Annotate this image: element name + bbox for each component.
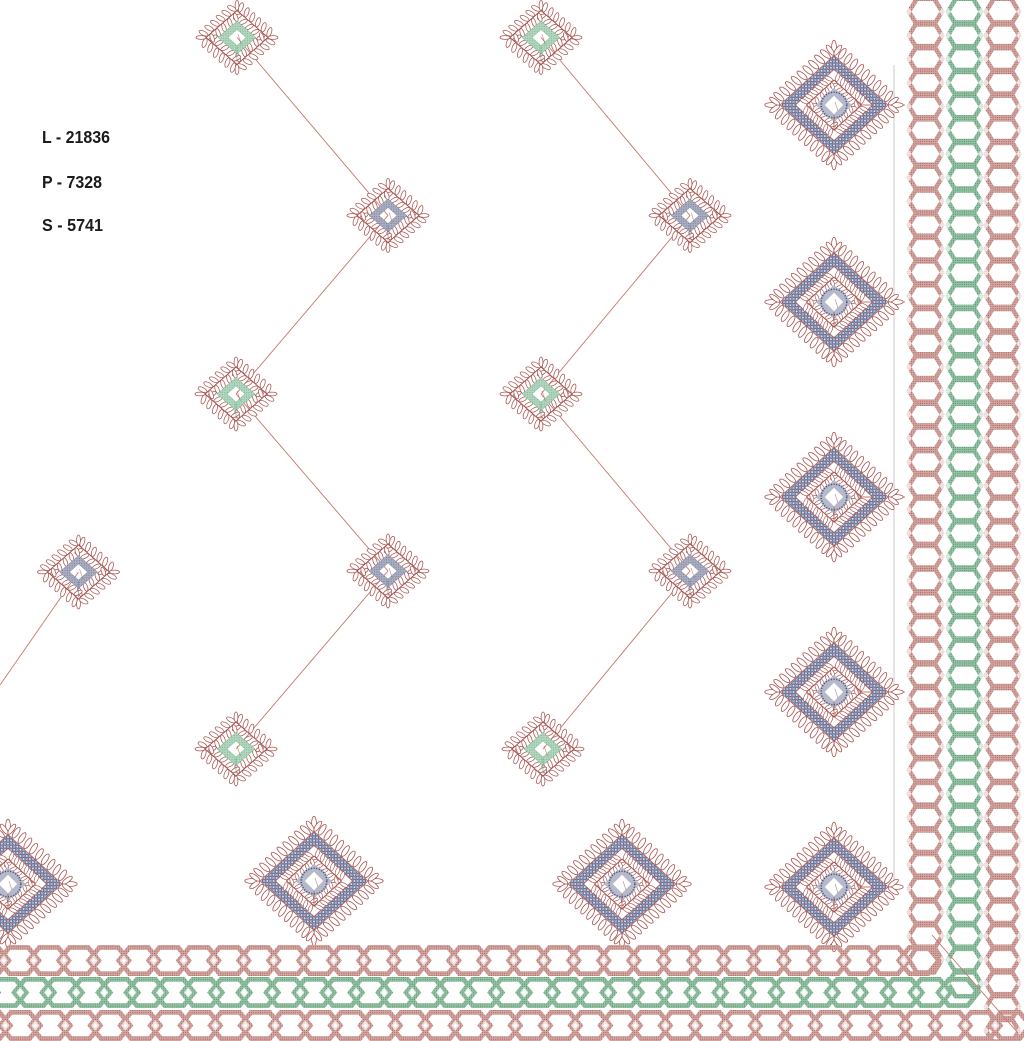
svg-text:P - 7328: P - 7328 (42, 172, 102, 192)
svg-text:L - 21836: L - 21836 (42, 127, 110, 147)
svg-text:S - 5741: S - 5741 (42, 215, 103, 235)
